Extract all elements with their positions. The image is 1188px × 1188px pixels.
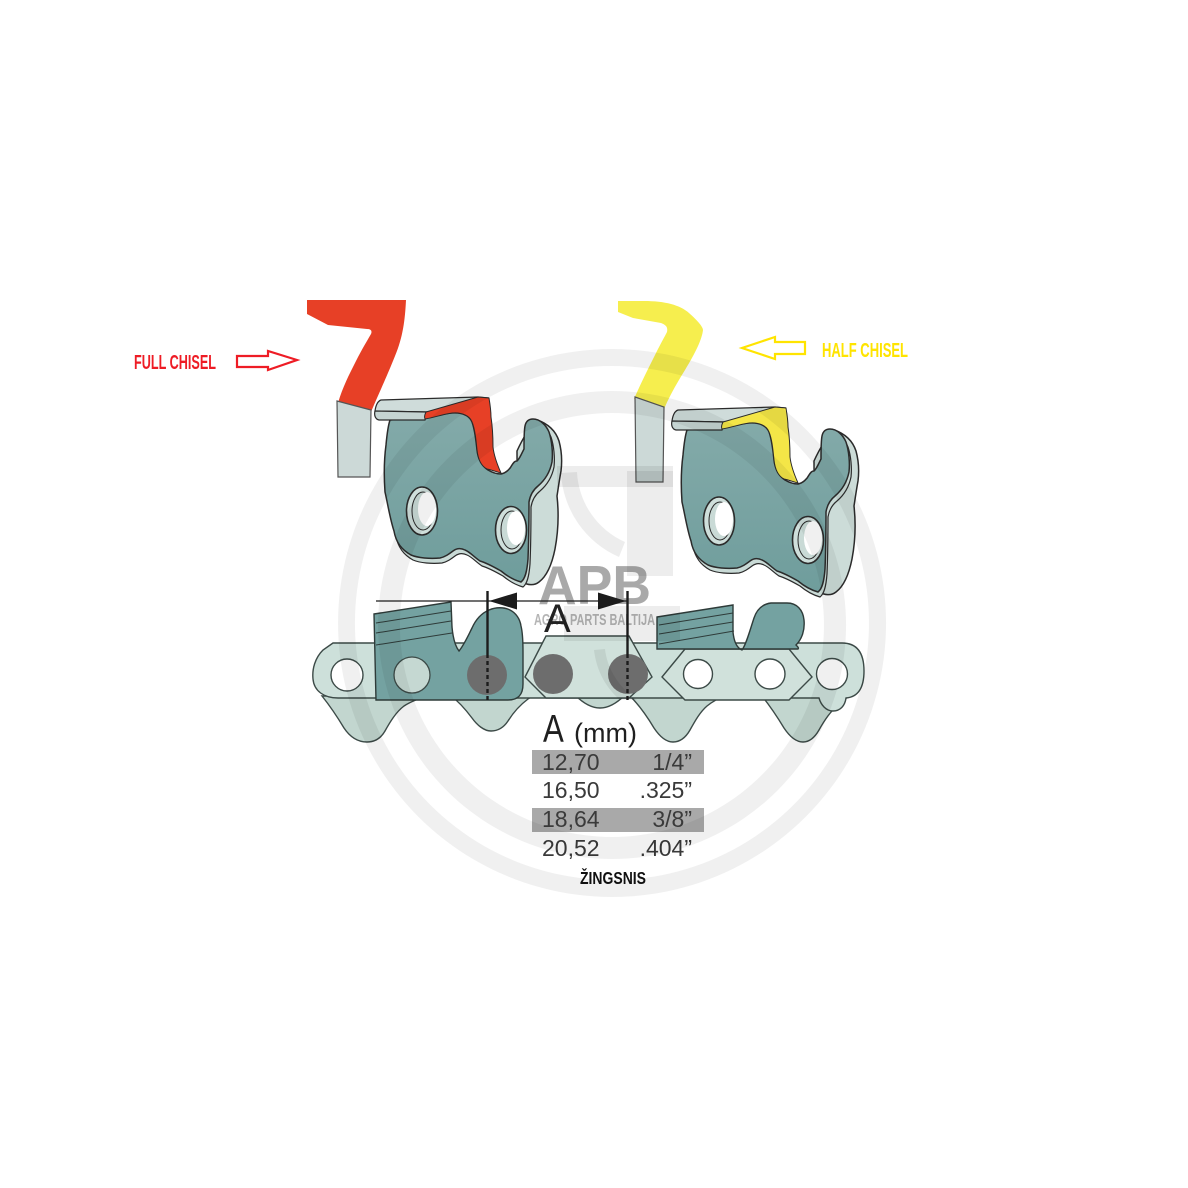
svg-text:12,70: 12,70 [542,749,600,775]
svg-text:1/4”: 1/4” [652,749,692,775]
svg-text:FULL CHISEL: FULL CHISEL [134,352,216,374]
svg-text:(mm): (mm) [574,718,637,748]
svg-text:.325”: .325” [640,777,692,803]
svg-text:16,50: 16,50 [542,777,600,803]
svg-text:A: A [543,708,564,751]
svg-text:HALF CHISEL: HALF CHISEL [822,340,908,362]
